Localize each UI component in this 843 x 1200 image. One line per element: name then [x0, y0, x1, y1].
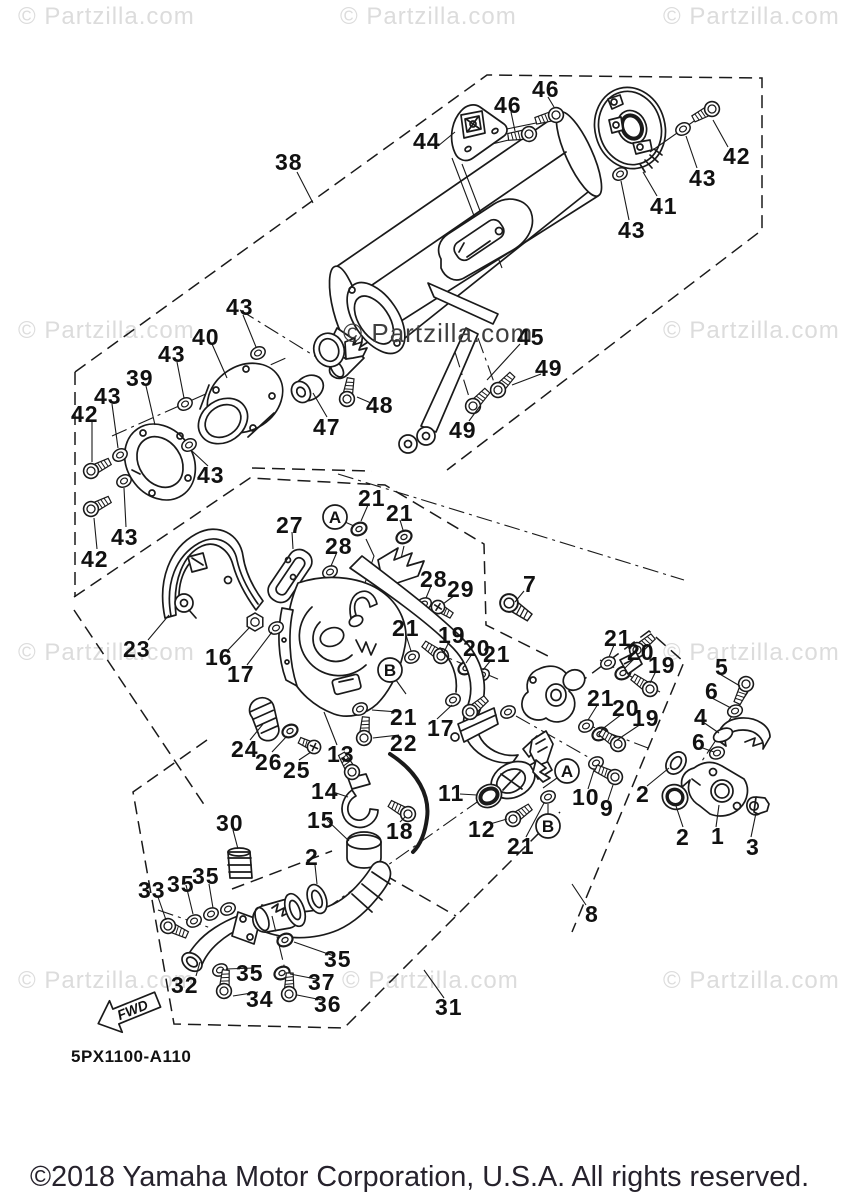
svg-text:42: 42 [723, 143, 751, 169]
svg-text:43: 43 [618, 217, 646, 243]
svg-text:43: 43 [226, 294, 254, 320]
svg-text:46: 46 [532, 76, 560, 102]
svg-text:© Partzilla.com: © Partzilla.com [18, 639, 195, 666]
svg-text:43: 43 [689, 165, 717, 191]
svg-text:A: A [329, 508, 341, 527]
svg-text:© Partzilla.com: © Partzilla.com [343, 318, 533, 348]
svg-text:5: 5 [715, 654, 729, 680]
svg-text:47: 47 [313, 414, 341, 440]
svg-text:6: 6 [692, 729, 706, 755]
svg-text:30: 30 [216, 810, 244, 836]
svg-text:43: 43 [111, 524, 139, 550]
svg-text:44: 44 [413, 128, 441, 154]
svg-text:21: 21 [483, 641, 511, 667]
svg-text:15: 15 [307, 807, 335, 833]
svg-text:21: 21 [358, 485, 386, 511]
svg-text:© Partzilla.com: © Partzilla.com [340, 3, 517, 30]
svg-text:18: 18 [386, 818, 414, 844]
svg-text:9: 9 [600, 795, 614, 821]
svg-text:3: 3 [746, 834, 760, 860]
svg-text:©2018 Yamaha Motor Corporation: ©2018 Yamaha Motor Corporation, U.S.A. A… [30, 1161, 809, 1193]
svg-text:26: 26 [255, 749, 283, 775]
svg-text:11: 11 [438, 780, 464, 806]
svg-text:31: 31 [435, 994, 463, 1020]
svg-text:43: 43 [158, 341, 186, 367]
svg-text:21: 21 [587, 685, 615, 711]
svg-text:21: 21 [507, 833, 535, 859]
svg-text:28: 28 [420, 566, 448, 592]
svg-text:21: 21 [390, 704, 418, 730]
svg-text:38: 38 [275, 149, 303, 175]
svg-text:17: 17 [227, 661, 255, 687]
svg-text:49: 49 [535, 355, 563, 381]
svg-text:© Partzilla.com: © Partzilla.com [18, 3, 195, 30]
svg-text:© Partzilla.com: © Partzilla.com [663, 967, 840, 994]
svg-text:21: 21 [386, 500, 414, 526]
svg-text:10: 10 [572, 784, 600, 810]
svg-text:12: 12 [468, 816, 496, 842]
svg-text:B: B [384, 661, 396, 680]
svg-text:19: 19 [632, 705, 660, 731]
svg-text:35: 35 [167, 871, 195, 897]
svg-text:© Partzilla.com: © Partzilla.com [663, 3, 840, 30]
svg-text:8: 8 [585, 901, 599, 927]
svg-text:7: 7 [523, 571, 537, 597]
svg-text:41: 41 [650, 193, 678, 219]
svg-text:36: 36 [314, 991, 342, 1017]
svg-text:22: 22 [390, 730, 418, 756]
svg-text:A: A [561, 762, 573, 781]
svg-text:43: 43 [197, 462, 225, 488]
svg-text:5PX1100-A110: 5PX1100-A110 [71, 1047, 191, 1066]
svg-text:35: 35 [192, 863, 220, 889]
svg-text:46: 46 [494, 92, 522, 118]
svg-text:17: 17 [427, 715, 455, 741]
svg-text:32: 32 [171, 972, 199, 998]
svg-text:© Partzilla.com: © Partzilla.com [663, 639, 840, 666]
svg-text:35: 35 [236, 960, 264, 986]
svg-text:14: 14 [311, 778, 339, 804]
svg-text:48: 48 [366, 392, 394, 418]
svg-text:34: 34 [246, 986, 274, 1012]
svg-text:19: 19 [438, 622, 466, 648]
svg-text:39: 39 [126, 365, 154, 391]
svg-text:© Partzilla.com: © Partzilla.com [342, 967, 519, 994]
svg-text:4: 4 [694, 704, 708, 730]
svg-text:29: 29 [447, 576, 475, 602]
svg-text:42: 42 [71, 401, 99, 427]
svg-text:1: 1 [711, 823, 725, 849]
svg-text:2: 2 [305, 844, 319, 870]
svg-text:2: 2 [676, 824, 690, 850]
svg-text:B: B [542, 817, 554, 836]
svg-text:49: 49 [449, 417, 477, 443]
svg-text:40: 40 [192, 324, 220, 350]
svg-text:13: 13 [327, 741, 355, 767]
svg-text:© Partzilla.com: © Partzilla.com [663, 317, 840, 344]
svg-text:© Partzilla.com: © Partzilla.com [18, 317, 195, 344]
svg-text:2: 2 [636, 781, 650, 807]
svg-text:42: 42 [81, 546, 109, 572]
svg-text:21: 21 [392, 615, 420, 641]
svg-text:6: 6 [705, 678, 719, 704]
svg-text:45: 45 [517, 324, 545, 350]
svg-text:33: 33 [138, 877, 166, 903]
svg-text:27: 27 [276, 512, 304, 538]
svg-text:23: 23 [123, 636, 151, 662]
svg-text:28: 28 [325, 533, 353, 559]
svg-text:19: 19 [648, 652, 676, 678]
svg-text:25: 25 [283, 757, 311, 783]
